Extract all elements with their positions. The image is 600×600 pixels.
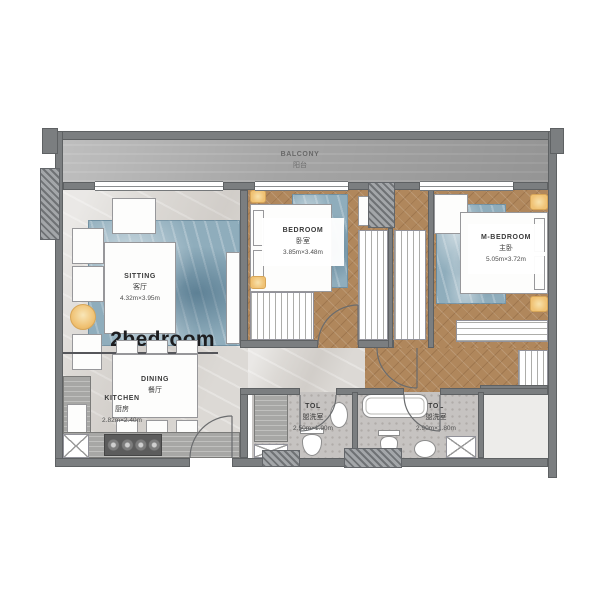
wall-balcony-inner xyxy=(223,182,255,190)
wall-living-toilet xyxy=(240,392,248,458)
corridor-floor xyxy=(248,348,365,392)
master-pillow xyxy=(534,256,545,290)
armchair xyxy=(112,198,156,234)
hall-closet-right xyxy=(394,230,426,340)
bedroom-nightstand xyxy=(250,276,266,289)
ac-ledge xyxy=(40,168,60,240)
bedroom-pillow xyxy=(253,210,264,246)
master-nightstand xyxy=(530,194,548,210)
wall-master-divider xyxy=(428,190,434,348)
master-wardrobe-side xyxy=(518,350,548,388)
hall-closet-left xyxy=(358,230,388,340)
wall-balcony-inner xyxy=(513,182,548,190)
balcony-floor xyxy=(63,140,548,182)
sofa-seat xyxy=(72,228,104,264)
window-bedroom xyxy=(255,181,348,191)
window-living xyxy=(95,181,223,191)
stove-cooktop xyxy=(104,434,162,456)
wall-bedroom-bottom xyxy=(240,340,318,348)
washbasin-icon xyxy=(330,402,348,428)
wall-toilet-right-divider xyxy=(478,392,484,458)
shower-cabinet xyxy=(254,394,288,442)
master-pillow xyxy=(534,218,545,252)
service-shaft xyxy=(262,450,300,467)
wall-balcony-inner xyxy=(63,182,95,190)
wall-top xyxy=(55,131,550,140)
shower-tray xyxy=(446,436,476,458)
kitchen-appliance xyxy=(63,434,89,458)
bedroom-nightstand xyxy=(250,190,266,203)
wall-closet-mid xyxy=(388,228,393,348)
wall-tab-top-right xyxy=(550,128,564,154)
washbasin-icon xyxy=(414,440,436,458)
bedroom-wardrobe xyxy=(250,292,314,340)
wall-right xyxy=(548,131,557,478)
dining-chair xyxy=(146,340,168,354)
service-shaft xyxy=(344,448,402,468)
utility-floor xyxy=(484,392,548,458)
dining-chair xyxy=(176,340,198,354)
wall-toilet-top xyxy=(240,388,300,395)
master-nightstand xyxy=(530,296,548,312)
dining-chair xyxy=(116,340,138,354)
column xyxy=(368,182,395,228)
wall-toilet-top xyxy=(336,388,404,395)
floor-plan: SITTING 客厅 4.32m×3.95m 2bedroom DINING 餐… xyxy=(0,0,600,600)
wall-tab-top-left xyxy=(42,128,58,154)
master-wardrobe xyxy=(456,320,548,342)
sofa-seat xyxy=(72,266,104,302)
wall-bottom-left xyxy=(55,458,190,467)
wall-living-bedroom xyxy=(240,190,248,348)
media-console xyxy=(226,252,240,344)
window-master xyxy=(420,181,513,191)
bathtub-icon xyxy=(362,394,428,418)
wall-toilet-top xyxy=(440,388,548,395)
